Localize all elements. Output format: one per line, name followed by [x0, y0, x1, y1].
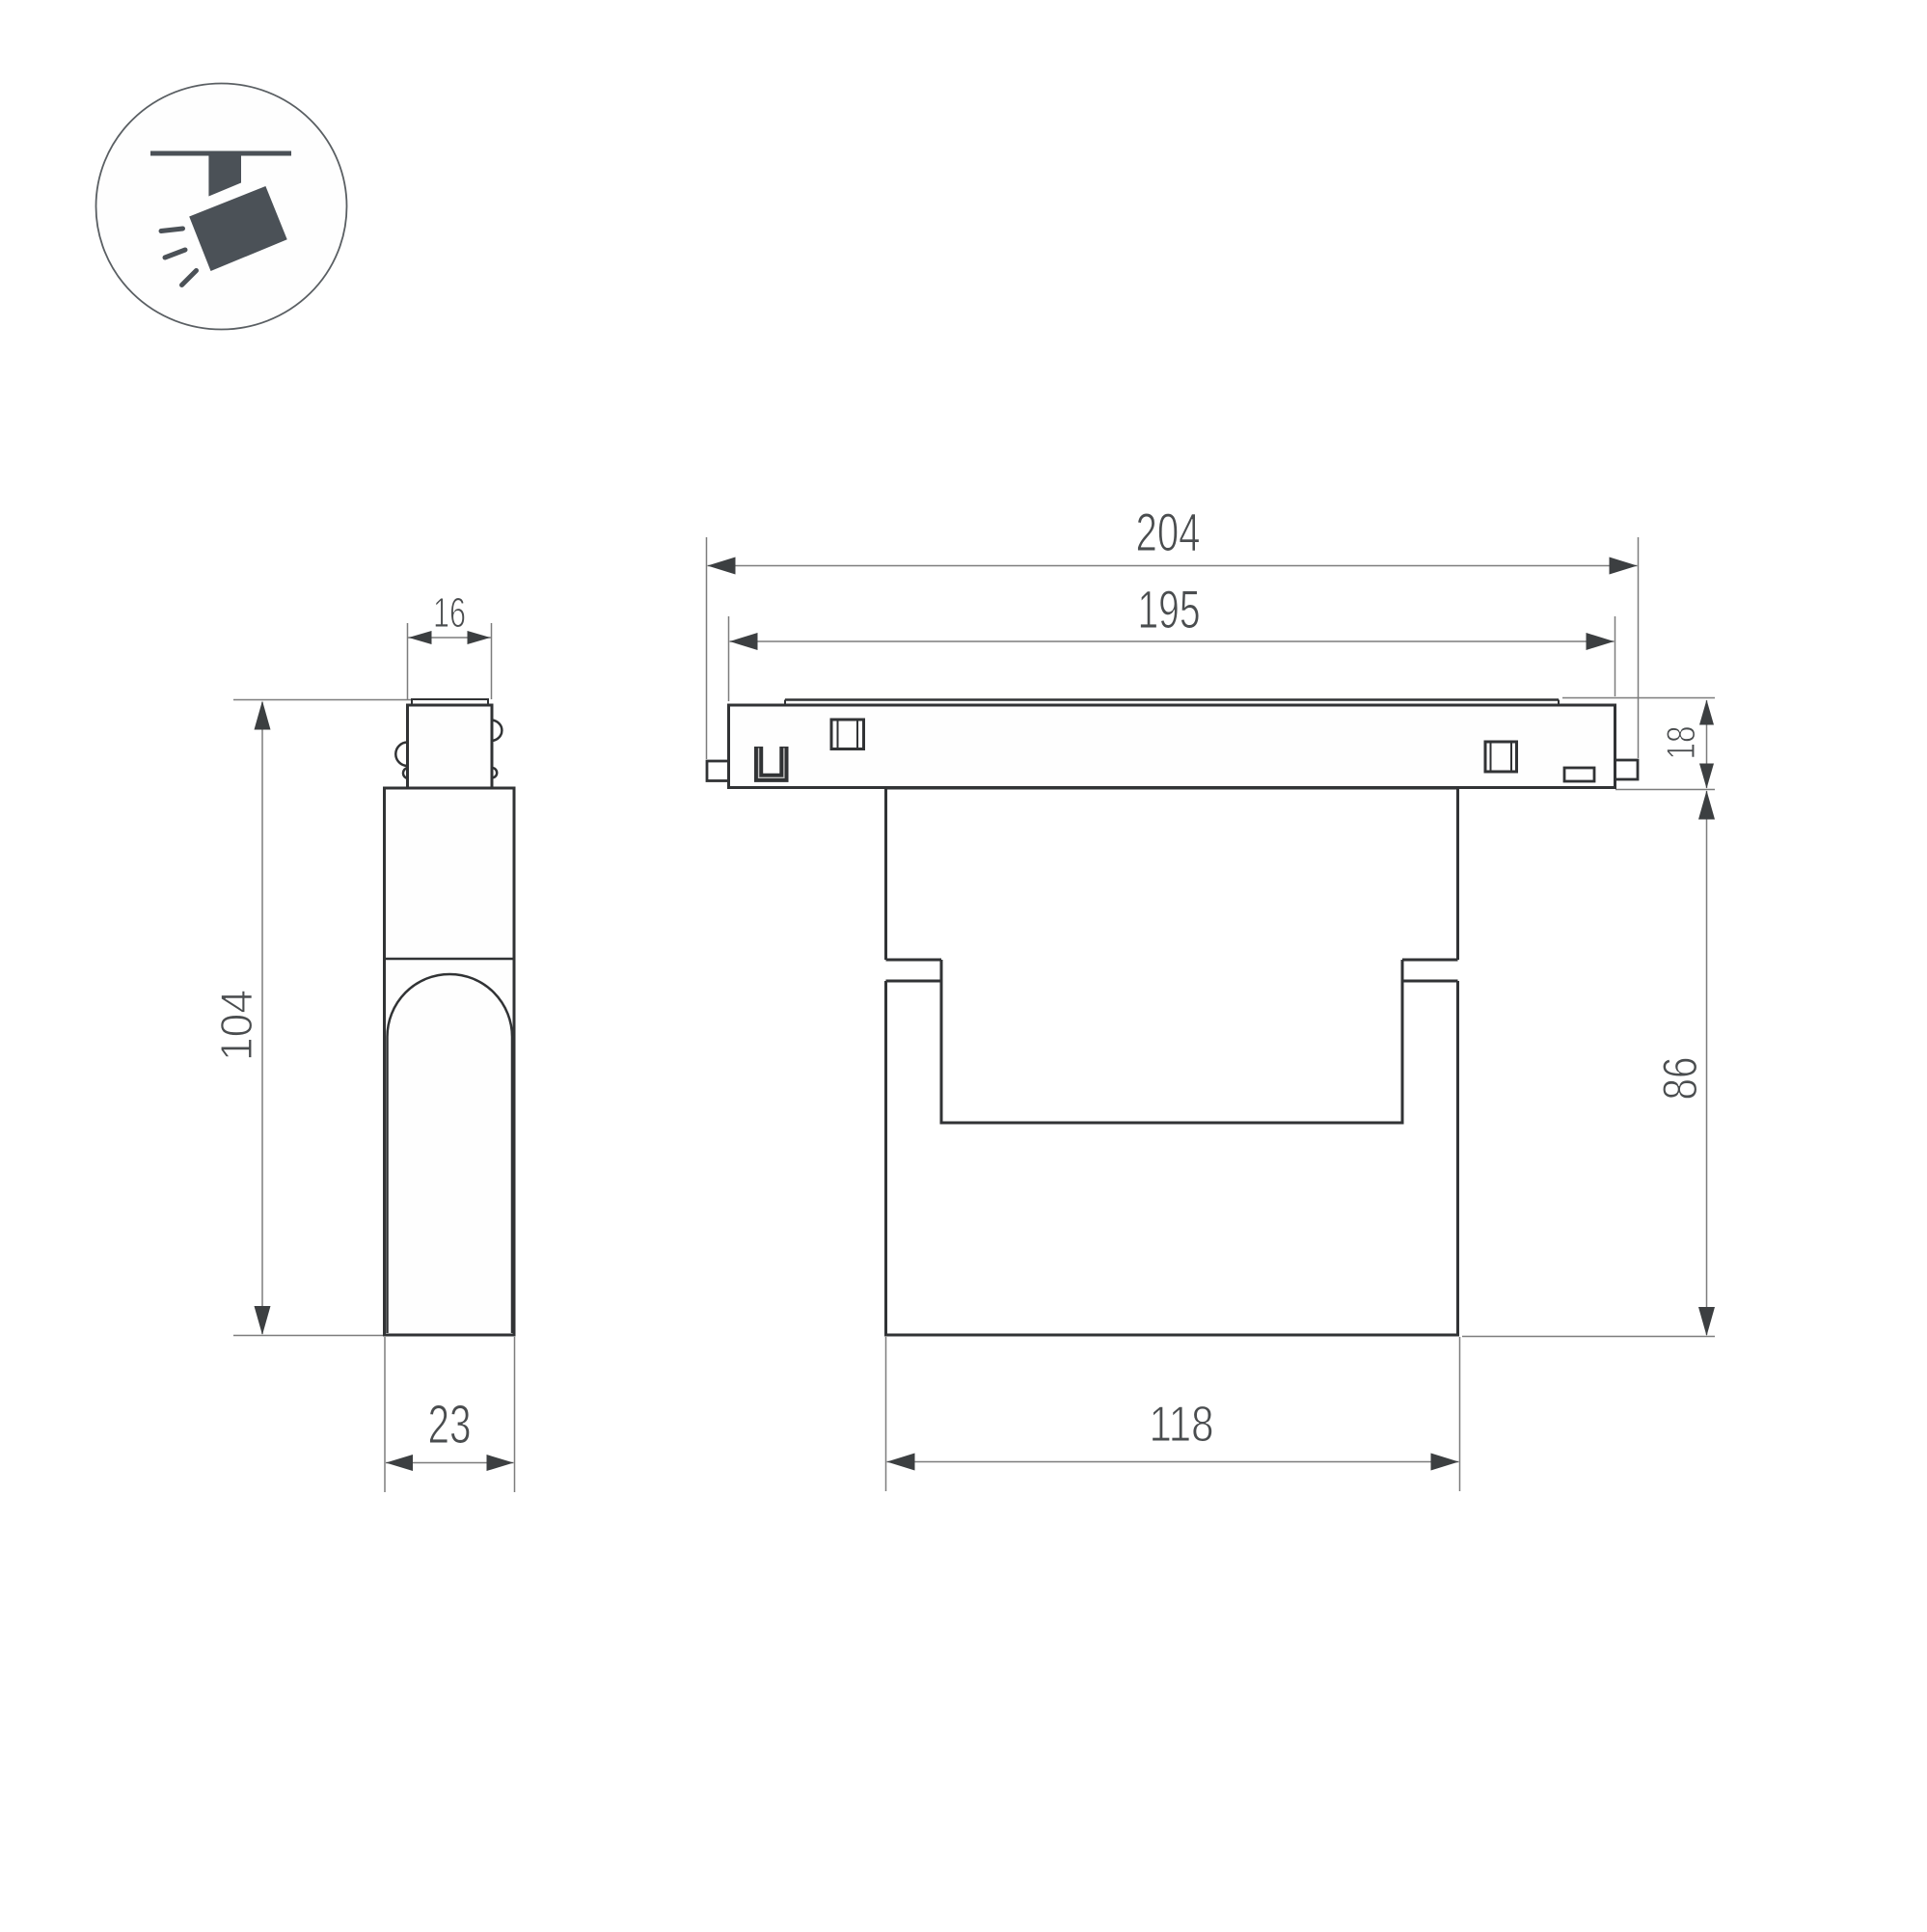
- svg-text:204: 204: [1136, 502, 1201, 562]
- svg-text:23: 23: [428, 1394, 472, 1456]
- svg-text:18: 18: [1658, 726, 1703, 760]
- svg-text:118: 118: [1150, 1397, 1214, 1453]
- svg-text:86: 86: [1653, 1057, 1707, 1101]
- svg-text:104: 104: [211, 990, 261, 1061]
- svg-text:195: 195: [1138, 579, 1201, 639]
- svg-text:16: 16: [433, 589, 466, 637]
